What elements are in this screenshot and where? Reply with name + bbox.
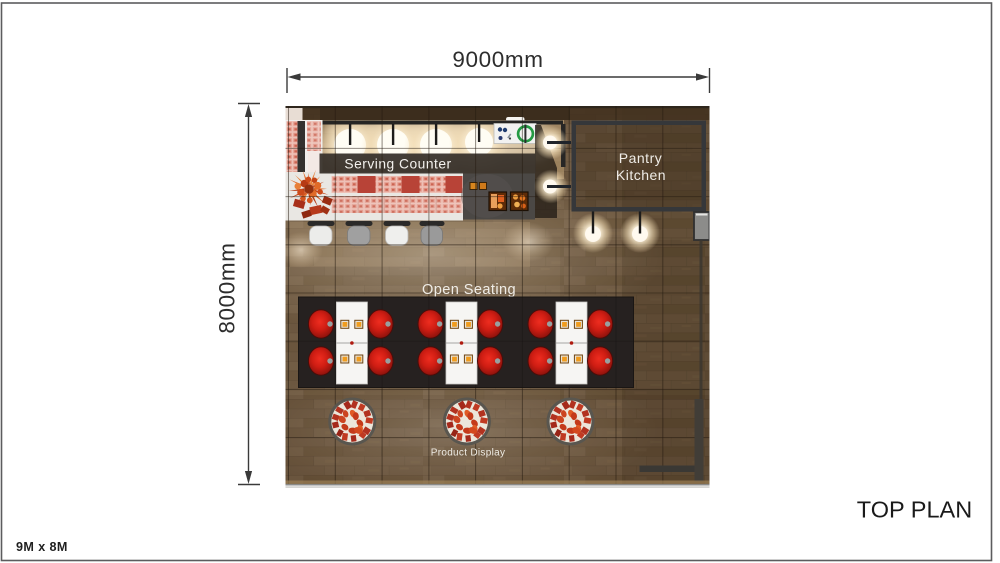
svg-text:Kitchen: Kitchen bbox=[616, 167, 666, 183]
svg-text:Product Display: Product Display bbox=[431, 447, 506, 458]
svg-text:Pantry: Pantry bbox=[619, 150, 662, 166]
svg-text:8000mm: 8000mm bbox=[215, 242, 240, 333]
svg-text:Serving Counter: Serving Counter bbox=[344, 157, 451, 172]
svg-text:Open Seating: Open Seating bbox=[422, 282, 516, 298]
svg-text:9000mm: 9000mm bbox=[452, 47, 543, 72]
svg-text:9M x 8M: 9M x 8M bbox=[16, 540, 68, 554]
svg-text:TOP PLAN: TOP PLAN bbox=[857, 497, 972, 523]
